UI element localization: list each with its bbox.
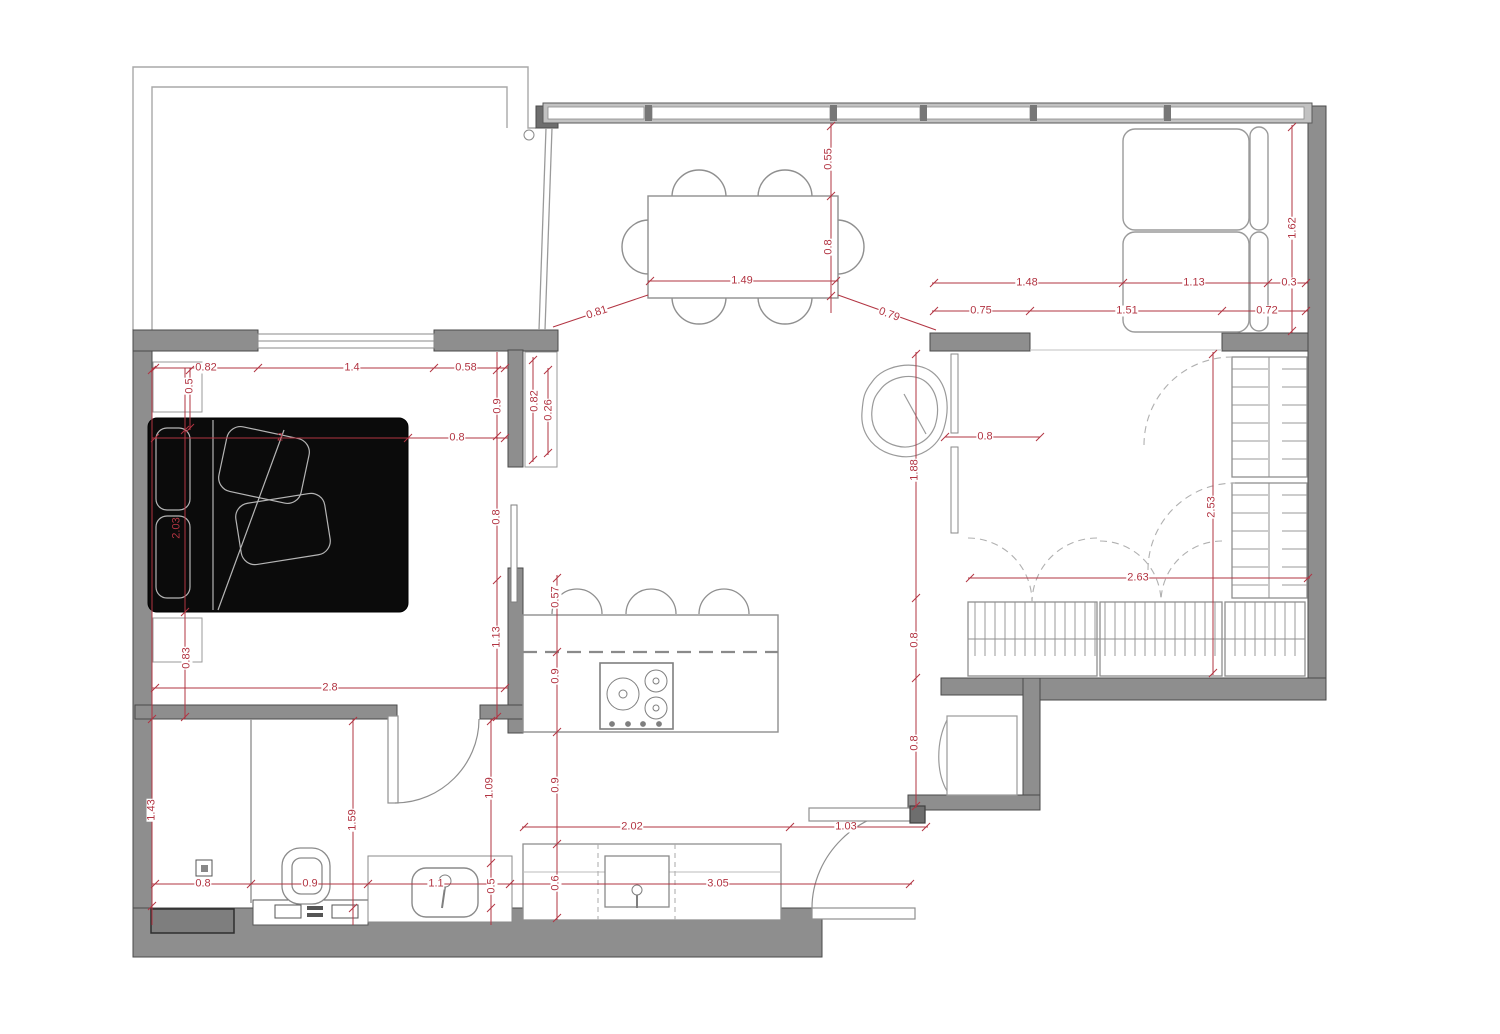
bedroom-top-wall-right <box>434 330 558 351</box>
dining-chair <box>622 220 649 274</box>
kitchen-counter <box>523 844 781 920</box>
window-band-top <box>543 103 1312 123</box>
floorplan-page: 0.550.81.490.810.791.481.130.30.751.510.… <box>0 0 1500 1034</box>
bar-stool <box>552 589 602 614</box>
closet-top-wall-left <box>930 333 1030 351</box>
appliance <box>947 716 1017 795</box>
dining-chair <box>672 297 726 324</box>
sofa-seat <box>1123 232 1249 332</box>
knob <box>626 722 631 727</box>
terrace <box>133 67 536 330</box>
entry-side-cabinet <box>809 808 925 821</box>
entry-wall-cap <box>910 806 925 823</box>
walk-in-closet <box>968 357 1307 676</box>
nightstand-bottom <box>153 618 202 662</box>
bathroom-top-wall <box>135 705 397 719</box>
kitchen-island <box>523 589 778 732</box>
bathroom-door-leaf <box>388 716 398 803</box>
bar-stool <box>699 589 749 614</box>
entry-door-leaf <box>812 908 915 919</box>
bathroom-door-arc <box>395 719 479 803</box>
plant <box>862 365 947 457</box>
exterior-step <box>151 909 234 933</box>
knob <box>610 722 615 727</box>
sofa-arm-cushion <box>1250 232 1268 331</box>
bedroom-furniture <box>148 352 557 662</box>
floorplan-canvas <box>0 0 1500 1034</box>
bedroom-top-wall-left <box>133 330 258 351</box>
knob <box>641 722 646 727</box>
closet-partition-lower <box>951 447 958 533</box>
dining-chair <box>758 297 812 324</box>
dining-chair <box>758 170 812 197</box>
bar-stool <box>626 589 676 614</box>
bathroom-top-wall-stub <box>480 705 523 719</box>
knob <box>657 722 662 727</box>
sofa-arm-cushion <box>1250 127 1268 230</box>
toilet <box>282 848 330 904</box>
entry-door-arc <box>812 810 912 908</box>
nightstand-top <box>153 362 202 412</box>
sofa <box>1123 127 1268 332</box>
closet-bottom-wall <box>1040 678 1326 700</box>
dining-set <box>622 170 864 324</box>
sofa-seat <box>1123 129 1249 230</box>
niche-wall-bottom <box>908 795 1040 810</box>
closet-partition-upper <box>951 354 958 433</box>
pocket-door <box>511 505 517 602</box>
kitchen-wall-upper <box>508 350 523 467</box>
closet-door-arcs <box>968 357 1235 602</box>
niche-wall-right <box>1023 678 1040 810</box>
column-circle <box>524 130 534 140</box>
right-wall <box>1308 106 1326 700</box>
wardrobe-cabinet <box>525 352 557 467</box>
diagonal-glazing <box>539 128 546 330</box>
appliance-niche <box>939 716 1017 795</box>
dining-chair <box>672 170 726 197</box>
bathroom <box>151 848 512 933</box>
closet-top-wall-right <box>1222 333 1308 351</box>
dining-table <box>648 196 838 298</box>
cooktop <box>600 663 673 729</box>
dining-chair <box>837 220 864 274</box>
